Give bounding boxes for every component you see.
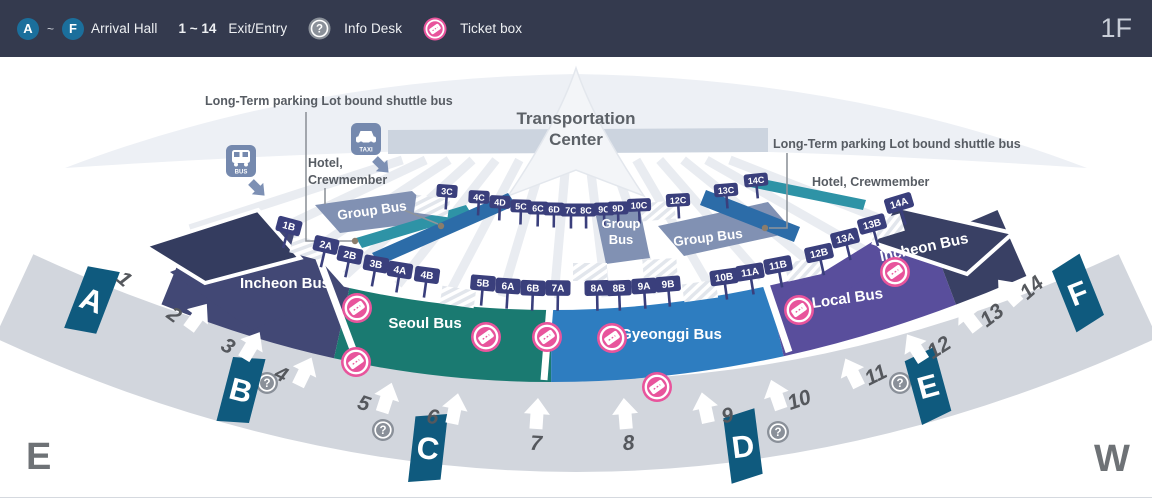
- long-term-parking-label-left: Long-Term parking Lot bound shuttle bus: [205, 94, 453, 108]
- transportation-center-title: Center: [549, 130, 603, 149]
- info-desk-label: Info Desk: [344, 21, 402, 36]
- stop-sign-text: 5B: [476, 278, 490, 290]
- zebra-crossing: [642, 258, 677, 278]
- hotel-crewmember-label-left: Crewmember: [308, 173, 387, 187]
- stop-sign-text: 9B: [661, 279, 675, 291]
- ticket-box-icon: [532, 322, 562, 352]
- floor-indicator: 1F: [1100, 13, 1152, 44]
- zebra-crossing: [573, 263, 607, 281]
- exit-number: 8: [622, 431, 636, 455]
- stop-sign-text: 14C: [747, 175, 765, 187]
- group-bus-label-line: Bus: [609, 232, 634, 247]
- info-question-mark: ?: [896, 378, 903, 390]
- taxi-icon-body: [356, 137, 376, 143]
- stop-sign-pole: [507, 293, 508, 309]
- taxi-icon: TAXI: [351, 123, 381, 155]
- stop-sign-pole: [372, 271, 375, 287]
- tilde-separator: ~: [47, 22, 54, 36]
- stop-sign-text: 4C: [473, 192, 486, 203]
- info-desk-icon: ?: [889, 372, 911, 394]
- arrival-hall-badge-a: A: [17, 18, 39, 40]
- stop-sign-4A: 4A: [384, 260, 414, 294]
- arrival-hall-badge-f: F: [62, 18, 84, 40]
- connector-dot: [352, 238, 358, 244]
- ticket-box-icon: [642, 372, 672, 402]
- compass-west-label: W: [1094, 438, 1130, 481]
- stop-sign-pole: [532, 295, 533, 311]
- ticket-box-label: Ticket box: [460, 21, 522, 36]
- stop-sign-pole: [726, 195, 727, 208]
- stop-sign-text: 6A: [501, 281, 514, 293]
- bus-icon-wheel: [244, 163, 248, 167]
- stop-sign-text: 4B: [420, 270, 434, 283]
- stop-sign-text: 8C: [580, 205, 592, 215]
- bus-icon-text: BUS: [235, 170, 248, 176]
- ticket-box-icon: [342, 293, 372, 323]
- ticket-box-icon: [341, 347, 371, 377]
- taxi-icon-roof: [358, 131, 374, 137]
- transportation-center-title: Transportation: [516, 109, 635, 128]
- stop-sign-text: 4D: [494, 197, 506, 207]
- stop-sign-pole: [478, 202, 479, 215]
- stop-sign-pole: [446, 196, 447, 209]
- connector-dot: [762, 225, 768, 231]
- hotel-crewmember-label-right: Hotel, Crewmember: [812, 175, 930, 189]
- stop-sign-text: 3C: [441, 186, 454, 197]
- info-question-mark: ?: [774, 427, 781, 439]
- group-bus-label-line: Group: [602, 216, 641, 231]
- exit-range: 1 ~ 14: [178, 21, 216, 36]
- stop-sign-6B: 6B: [520, 280, 546, 311]
- shuttle-bus-arrow: [245, 176, 270, 201]
- stop-sign-text: 9A: [637, 281, 650, 293]
- stop-sign-pole: [757, 185, 758, 198]
- ticket-box-icon: [471, 322, 501, 352]
- stop-sign-4B: 4B: [412, 266, 441, 300]
- long-term-parking-label-right: Long-Term parking Lot bound shuttle bus: [773, 137, 1021, 151]
- info-desk-icon: ?: [308, 17, 331, 40]
- info-question-mark: ?: [263, 378, 270, 390]
- shuttle-bus-icon: BUS: [226, 145, 256, 177]
- taxi-icon-wheel: [359, 142, 363, 146]
- stop-sign-pole: [669, 291, 670, 307]
- zone-label-incheon-left: Incheon Bus: [240, 275, 330, 292]
- stop-sign-text: 13C: [717, 185, 735, 196]
- connector-dot: [438, 223, 444, 229]
- arrival-hall-label: Arrival Hall: [91, 21, 157, 36]
- stop-sign-pole: [424, 282, 426, 298]
- stop-sign-text: 8A: [591, 283, 604, 294]
- stop-sign-text: 9D: [612, 203, 624, 213]
- taxi-icon-wheel: [369, 142, 373, 146]
- stop-sign-text: 8B: [612, 283, 625, 294]
- bus-icon-window: [234, 152, 240, 157]
- stop-sign-pole: [678, 205, 679, 218]
- info-question-mark: ?: [379, 425, 386, 437]
- stop-sign-text: 6C: [532, 203, 544, 213]
- ticket-box-icon: [880, 257, 910, 287]
- stop-sign-text: 6D: [548, 204, 560, 214]
- info-desk-icon: ?: [767, 421, 789, 443]
- ticket-box-icon: [784, 295, 814, 325]
- stop-sign-text: 5C: [515, 201, 527, 211]
- stop-sign-text: 6B: [526, 283, 539, 294]
- exit-entry-label: Exit/Entry: [228, 21, 287, 36]
- stop-sign-text: 7A: [551, 283, 564, 294]
- compass-east-label: E: [26, 436, 51, 479]
- stop-sign-6A: 6A: [494, 277, 521, 309]
- stop-sign-text: 3B: [369, 258, 384, 271]
- stop-sign-pole: [481, 290, 482, 306]
- zone-label-gyeonggi: Gyeonggi Bus: [620, 326, 722, 343]
- bus-icon-wheel: [234, 163, 238, 167]
- hotel-crewmember-label-left: Hotel,: [308, 156, 343, 170]
- gate-letter: D: [730, 428, 757, 466]
- info-desk-icon: ?: [372, 419, 394, 441]
- stop-sign-pole: [644, 293, 645, 309]
- stop-sign-8A: 8A: [584, 280, 610, 311]
- lane-stripe: [554, 160, 566, 298]
- zone-label-seoul: Seoul Bus: [388, 315, 461, 332]
- bus-icon-window: [243, 152, 249, 157]
- ticket-box-icon: [423, 17, 447, 41]
- stop-sign-text: 7C: [565, 205, 577, 215]
- terminal-map: 3C4C4D5C6C6D7C8C9C9D10C12C13C14C1B2A2B3B…: [0, 0, 1152, 498]
- taxi-icon-text: TAXI: [359, 148, 373, 154]
- ticket-box-icon: [597, 323, 627, 353]
- gate-letter: C: [415, 430, 441, 467]
- exit-number: 1: [112, 267, 136, 292]
- svg-text:?: ?: [316, 24, 323, 36]
- stop-sign-pole: [619, 295, 620, 311]
- stop-sign-text: 10C: [631, 200, 648, 211]
- stop-sign-8B: 8B: [606, 280, 632, 311]
- stop-sign-text: 12C: [670, 195, 688, 206]
- legend-bar: A ~ F Arrival Hall 1 ~ 14 Exit/Entry ? I…: [0, 0, 1152, 57]
- legend-items: A ~ F Arrival Hall 1 ~ 14 Exit/Entry ? I…: [0, 17, 536, 41]
- terminal-map-screenshot: 3C4C4D5C6C6D7C8C9C9D10C12C13C14C1B2A2B3B…: [0, 0, 1152, 498]
- stop-sign-pole: [499, 207, 500, 220]
- stop-sign-text: 4A: [393, 265, 407, 278]
